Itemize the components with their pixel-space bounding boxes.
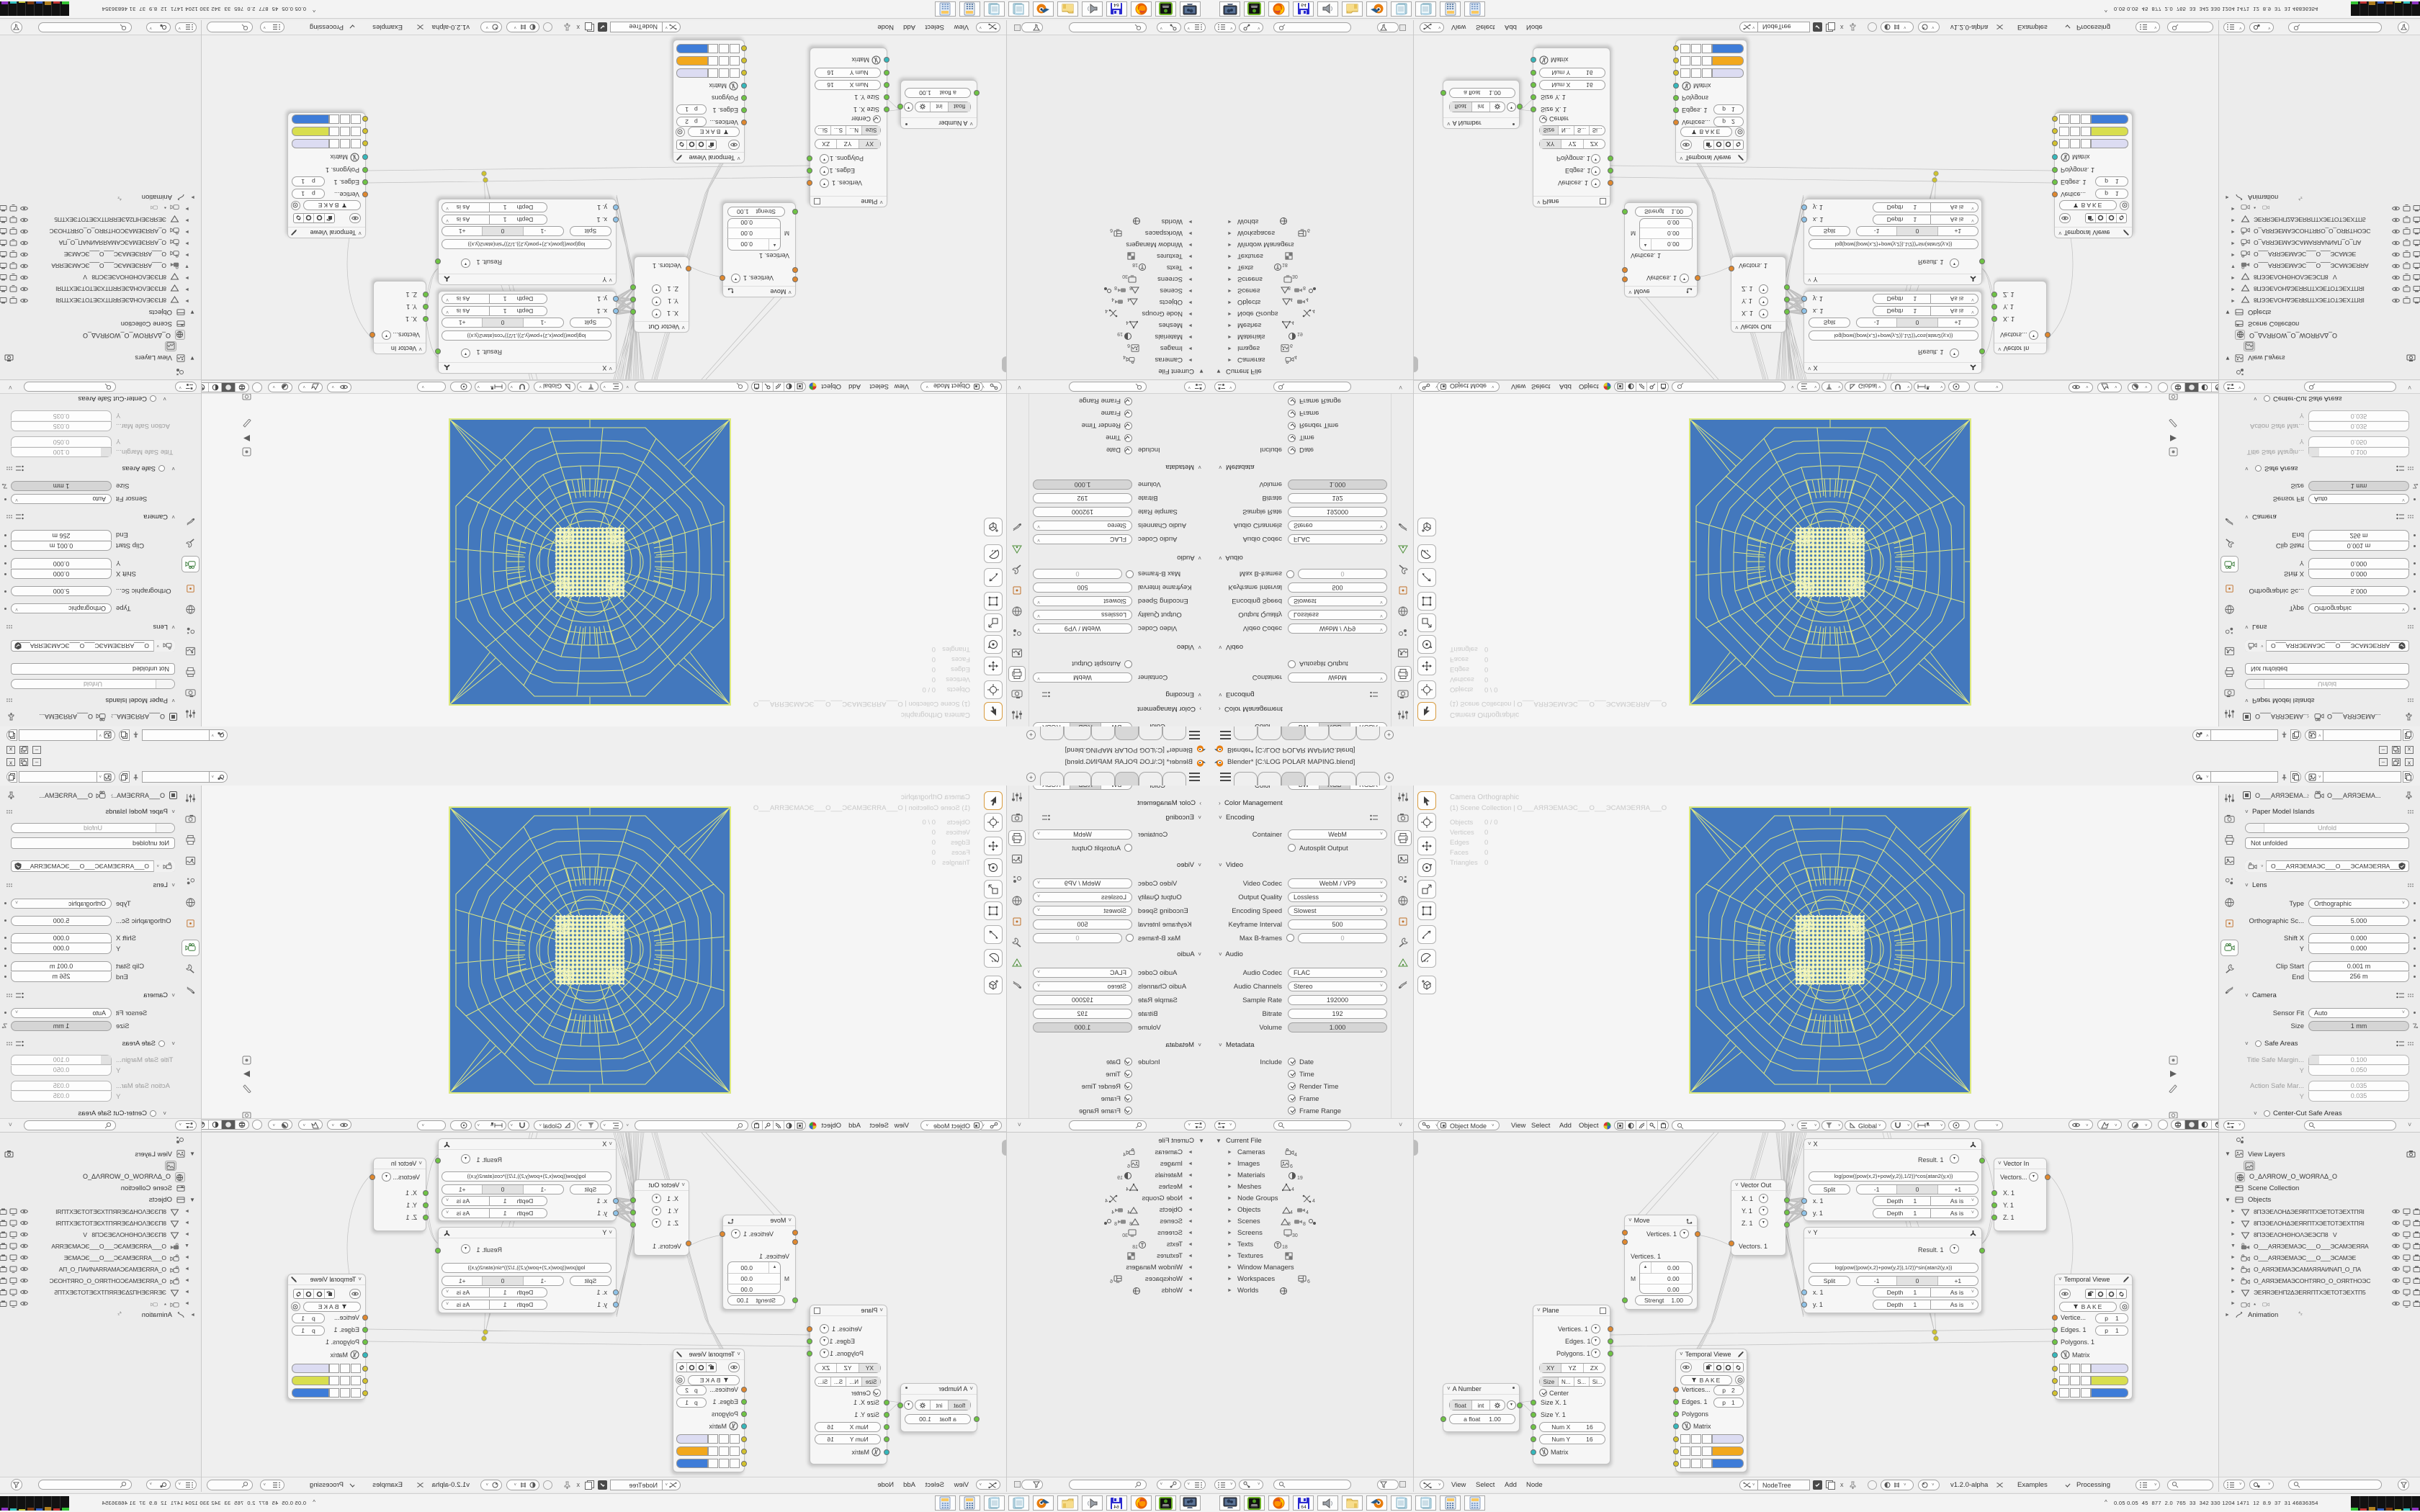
svg-text:64: 64 [1114, 1505, 1120, 1510]
svg-text:64: 64 [1301, 3, 1307, 8]
svg-text:64: 64 [1301, 1505, 1307, 1510]
svg-text:64: 64 [1114, 3, 1120, 8]
